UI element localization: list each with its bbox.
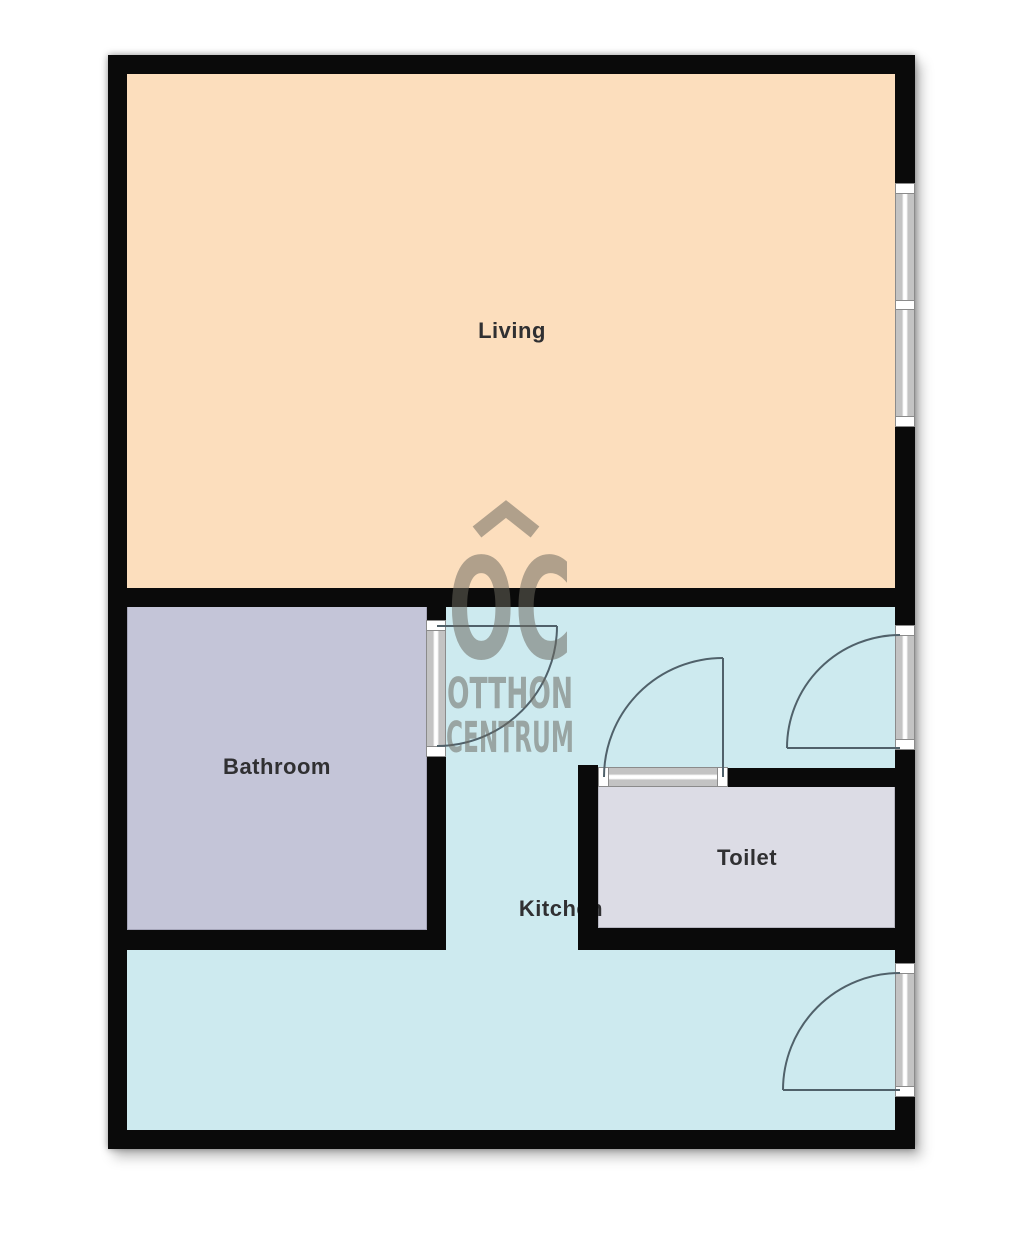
watermark-line1: OTTHON <box>447 669 573 719</box>
floorplan: Kitchen <box>108 55 915 1149</box>
entry-door-swing <box>787 635 900 748</box>
living-room-label: Living <box>478 318 546 344</box>
watermark-line2: CENTRUM <box>446 713 574 763</box>
floorplan-canvas: Kitchen <box>0 0 1016 1252</box>
bathroom-label: Bathroom <box>223 754 331 780</box>
otthon-centrum-watermark: OC OTTHON CENTRUM <box>440 498 580 768</box>
toilet-door-swing <box>604 658 723 777</box>
toilet-label: Toilet <box>717 845 777 871</box>
lower-door-swing <box>783 973 900 1090</box>
watermark-monogram: OC <box>448 529 572 692</box>
